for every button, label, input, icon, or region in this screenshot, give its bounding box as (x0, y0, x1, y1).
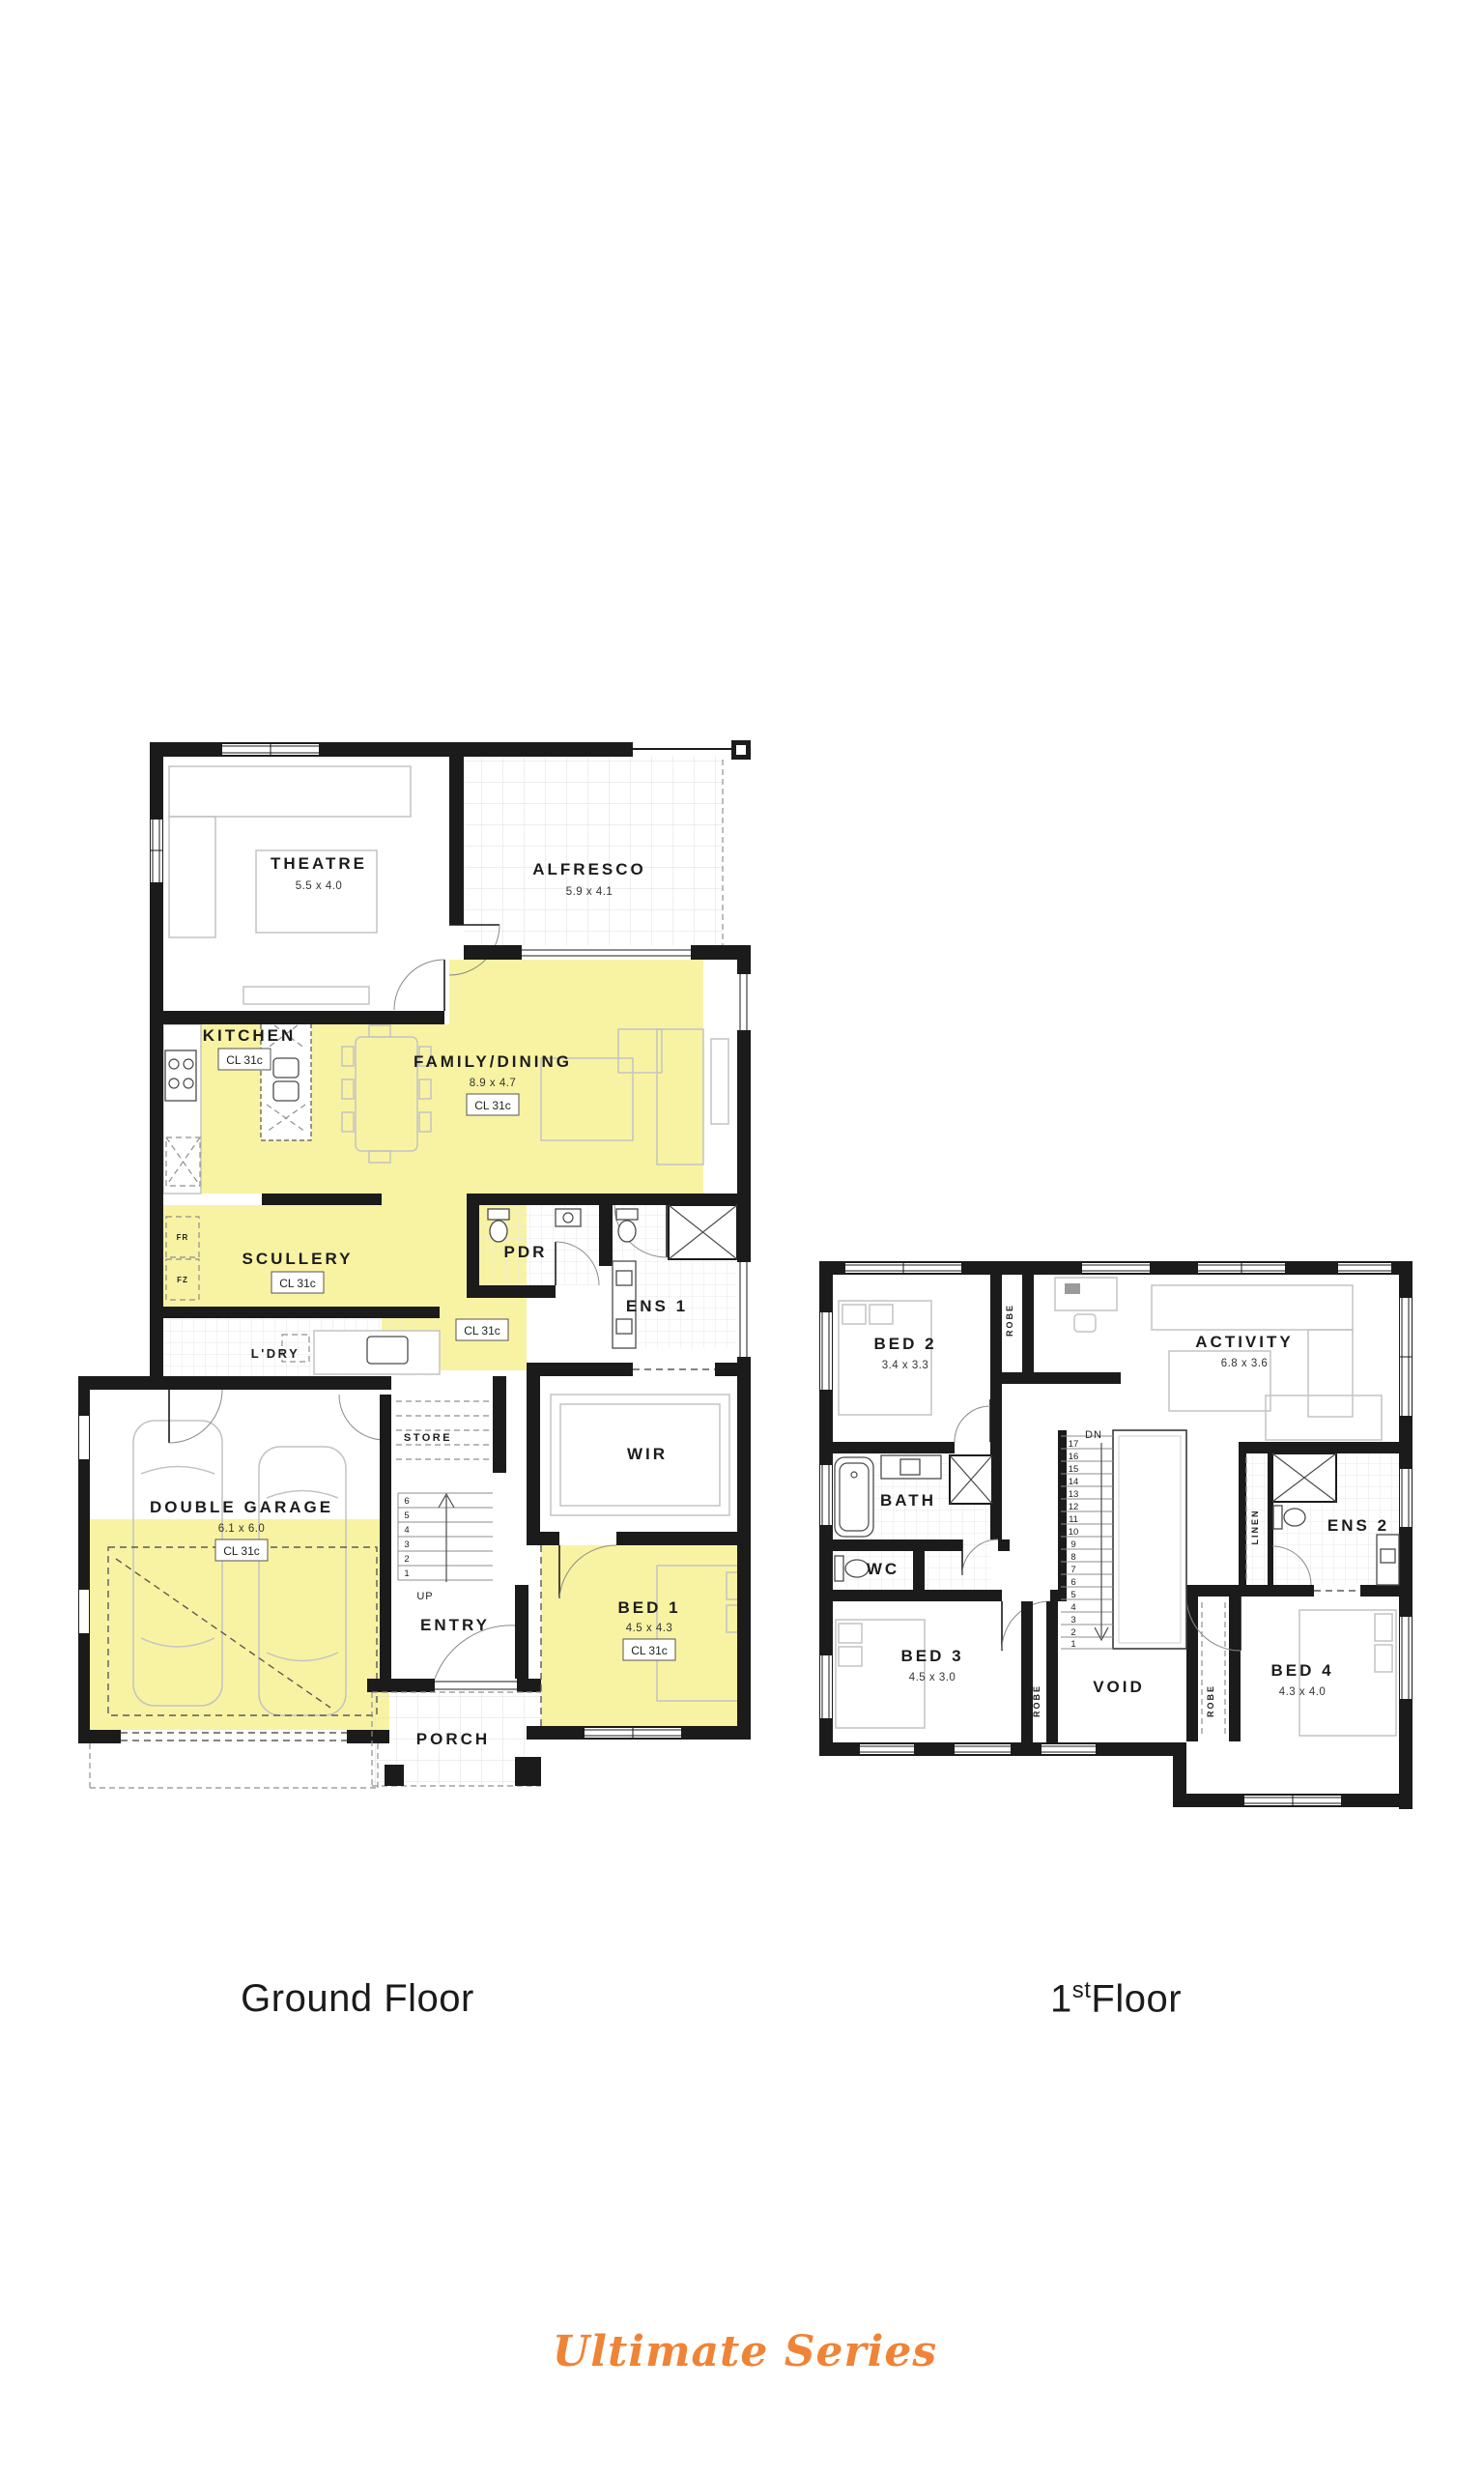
stair-number: 17 (1069, 1439, 1079, 1450)
room-label-wir: WIR (627, 1445, 668, 1463)
caption-ground-floor-text: Ground Floor (241, 1977, 474, 2020)
stair-number: 5 (404, 1510, 409, 1521)
stair-number: 2 (404, 1554, 409, 1565)
room-label: THEATRE (271, 854, 367, 873)
room-label-porch: PORCH (416, 1730, 490, 1748)
room-theatre: THEATRE 5.5 x 4.0 (271, 854, 367, 892)
first-floor-plan: DN 17 16 15 14 13 12 11 10 9 8 7 6 5 4 3… (812, 1254, 1420, 1820)
stair-number: 1 (404, 1568, 409, 1579)
room-bed3: BED 3 4.5 x 3.0 (900, 1647, 963, 1683)
room-label-entry: ENTRY (420, 1616, 490, 1634)
caption-first-num: 1 (1050, 1977, 1072, 2020)
room-label-ens1: ENS 1 (626, 1297, 688, 1315)
room-dim: 8.9 x 4.7 (470, 1078, 517, 1089)
robe-label-bed3: ROBE (1032, 1684, 1042, 1717)
stair-number: 5 (1070, 1590, 1075, 1600)
room-dim: 4.5 x 4.3 (626, 1623, 673, 1634)
room-dim: 5.5 x 4.0 (296, 880, 343, 892)
room-label-store: STORE (404, 1432, 452, 1444)
brand-logo: Ultimate Series (552, 2327, 938, 2376)
caption-first-sup: st (1072, 1977, 1092, 2003)
room-dim: 6.8 x 3.6 (1221, 1358, 1269, 1369)
room-bed1: BED 1 4.5 x 4.3 CL 31c (617, 1598, 680, 1660)
ceiling-label: CL 31c (631, 1644, 668, 1657)
room-label-laundry: L'DRY (251, 1346, 300, 1361)
freezer-label: FZ (177, 1276, 188, 1284)
stair-number: 10 (1069, 1527, 1079, 1538)
room-label-wc: WC (867, 1560, 899, 1578)
robe-label-bed4: ROBE (1206, 1684, 1215, 1717)
robe-label-bed2: ROBE (1005, 1304, 1014, 1337)
room-dim: 5.9 x 4.1 (566, 886, 614, 898)
stair-number: 8 (1070, 1552, 1075, 1563)
room-label: DOUBLE GARAGE (150, 1498, 333, 1516)
room-label: BED 4 (1270, 1661, 1333, 1680)
stair-number: 3 (404, 1539, 409, 1550)
stair-number: 6 (1070, 1577, 1075, 1588)
ceiling-label: CL 31c (226, 1053, 263, 1067)
room-dim: 4.3 x 4.0 (1279, 1686, 1327, 1698)
ground-floor-plan: 6 5 4 3 2 1 UP THEATRE 5.5 x 4.0 ALFRESC… (77, 739, 768, 1822)
stair-number: 14 (1069, 1477, 1079, 1487)
ceiling-label: CL 31c (474, 1099, 511, 1112)
room-label-bath: BATH (880, 1491, 936, 1510)
stair-number: 15 (1069, 1464, 1079, 1475)
stair-number: 16 (1069, 1452, 1079, 1462)
room-label: BED 2 (873, 1335, 936, 1353)
fridge-label: FR (177, 1233, 189, 1242)
room-bed2: BED 2 3.4 x 3.3 (873, 1335, 936, 1371)
stair-number: 2 (1070, 1627, 1075, 1638)
stairs-first: DN 17 16 15 14 13 12 11 10 9 8 7 6 5 4 3… (1061, 1429, 1186, 1650)
caption-first-word: Floor (1091, 1977, 1182, 2020)
room-dim: 3.4 x 3.3 (882, 1360, 929, 1371)
ceiling-label: CL 31c (223, 1544, 260, 1558)
stair-number: 9 (1070, 1539, 1075, 1550)
page: 6 5 4 3 2 1 UP THEATRE 5.5 x 4.0 ALFRESC… (0, 0, 1484, 2474)
ceiling-label: CL 31c (279, 1277, 316, 1290)
brand-logo-text: Ultimate Series (553, 2327, 937, 2376)
stair-number: 3 (1070, 1615, 1075, 1625)
linen-label: LINEN (1250, 1510, 1260, 1545)
hall-ceiling: CL 31c (456, 1319, 508, 1340)
room-label: SCULLERY (243, 1250, 354, 1268)
stair-number: 12 (1069, 1502, 1079, 1512)
stair-number: 7 (1070, 1565, 1075, 1575)
stair-number: 13 (1069, 1489, 1079, 1500)
room-label: FAMILY/DINING (414, 1052, 572, 1071)
caption-first-floor: 1stFloor (918, 1977, 1314, 2021)
room-label-ens2: ENS 2 (1327, 1516, 1389, 1535)
ceiling-label: CL 31c (464, 1324, 500, 1338)
room-bed4: BED 4 4.3 x 4.0 (1270, 1661, 1333, 1698)
room-label: BED 1 (617, 1598, 680, 1617)
room-label: BED 3 (900, 1647, 963, 1665)
room-label: ACTIVITY (1195, 1333, 1293, 1351)
room-label: KITCHEN (203, 1026, 297, 1045)
stair-number: 4 (404, 1525, 409, 1536)
stair-number: 4 (1070, 1602, 1075, 1613)
dn-label: DN (1085, 1429, 1102, 1441)
stair-number: 11 (1069, 1514, 1078, 1525)
room-label-void: VOID (1093, 1678, 1145, 1696)
up-label: UP (416, 1591, 433, 1602)
room-label-pdr: PDR (504, 1243, 548, 1261)
stair-number: 6 (404, 1496, 409, 1507)
room-dim: 4.5 x 3.0 (909, 1672, 956, 1683)
caption-ground-floor: Ground Floor (145, 1977, 570, 2021)
room-label: ALFRESCO (532, 860, 646, 878)
room-dim: 6.1 x 6.0 (218, 1523, 266, 1535)
stair-number: 1 (1070, 1639, 1075, 1650)
